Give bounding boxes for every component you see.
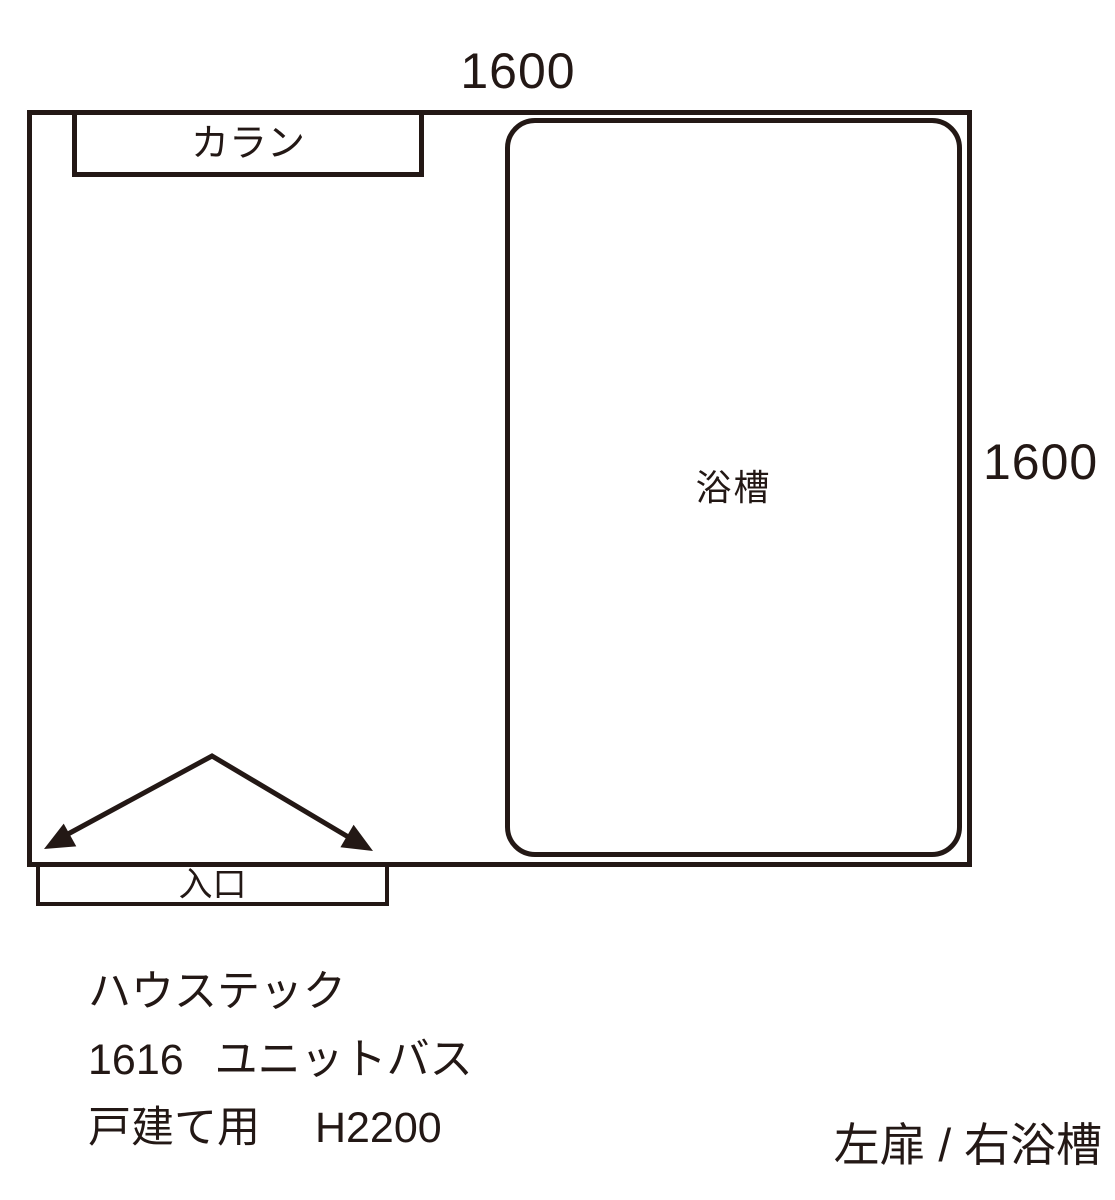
dimension-width-label: 1600 (433, 46, 603, 96)
dimension-height-label: 1600 (983, 437, 1098, 487)
door-swing-arrows-icon (30, 745, 385, 857)
note-model: 1616 ユニットバス (88, 1026, 473, 1094)
orientation-caption: 左扉 / 右浴槽 (834, 1122, 1102, 1168)
note-spec: 戸建て用 H2200 (88, 1094, 473, 1162)
entrance-label: 入口 (179, 867, 247, 903)
door-arrow-left-head-icon (44, 824, 76, 849)
entrance-box: 入口 (36, 867, 389, 906)
unit-bath-floorplan: 1600 1600 カラン 浴槽 入口 ハウステック 1616 ユニットバス 戸… (0, 0, 1115, 1200)
bathtub-box: 浴槽 (505, 118, 962, 857)
faucet-label: カラン (191, 125, 305, 163)
faucet-box: カラン (72, 110, 424, 177)
door-swing-polyline (68, 756, 350, 838)
note-maker: ハウステック (88, 958, 473, 1026)
bathtub-label: 浴槽 (695, 470, 771, 506)
notes-block: ハウステック 1616 ユニットバス 戸建て用 H2200 (88, 958, 473, 1162)
